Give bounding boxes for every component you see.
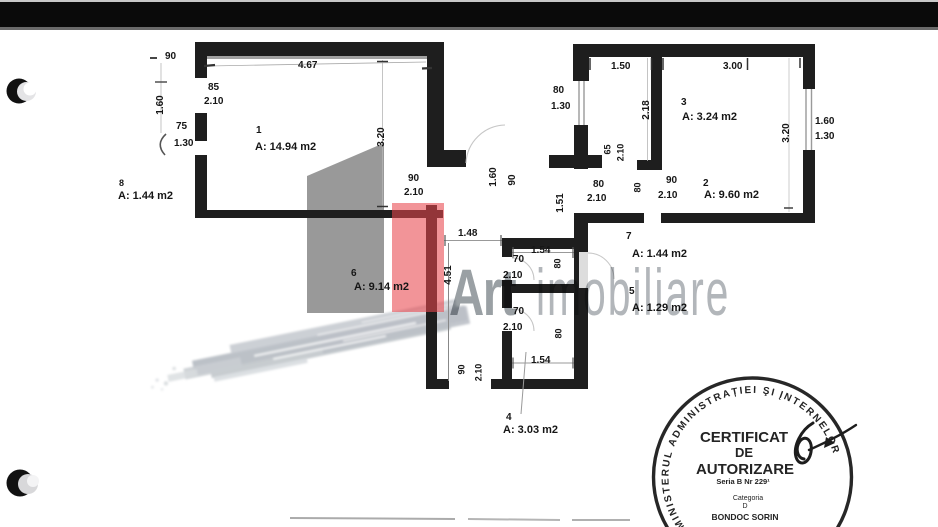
svg-text:Seria B Nr 229¹: Seria B Nr 229¹ bbox=[716, 477, 770, 486]
svg-text:DE: DE bbox=[735, 445, 753, 460]
svg-text:Categoria: Categoria bbox=[733, 495, 763, 502]
svg-text:AUTORIZARE: AUTORIZARE bbox=[696, 461, 794, 478]
svg-text:D: D bbox=[742, 503, 747, 510]
svg-text:BONDOC SORIN: BONDOC SORIN bbox=[711, 512, 778, 522]
svg-text:CERTIFICAT: CERTIFICAT bbox=[700, 429, 788, 446]
